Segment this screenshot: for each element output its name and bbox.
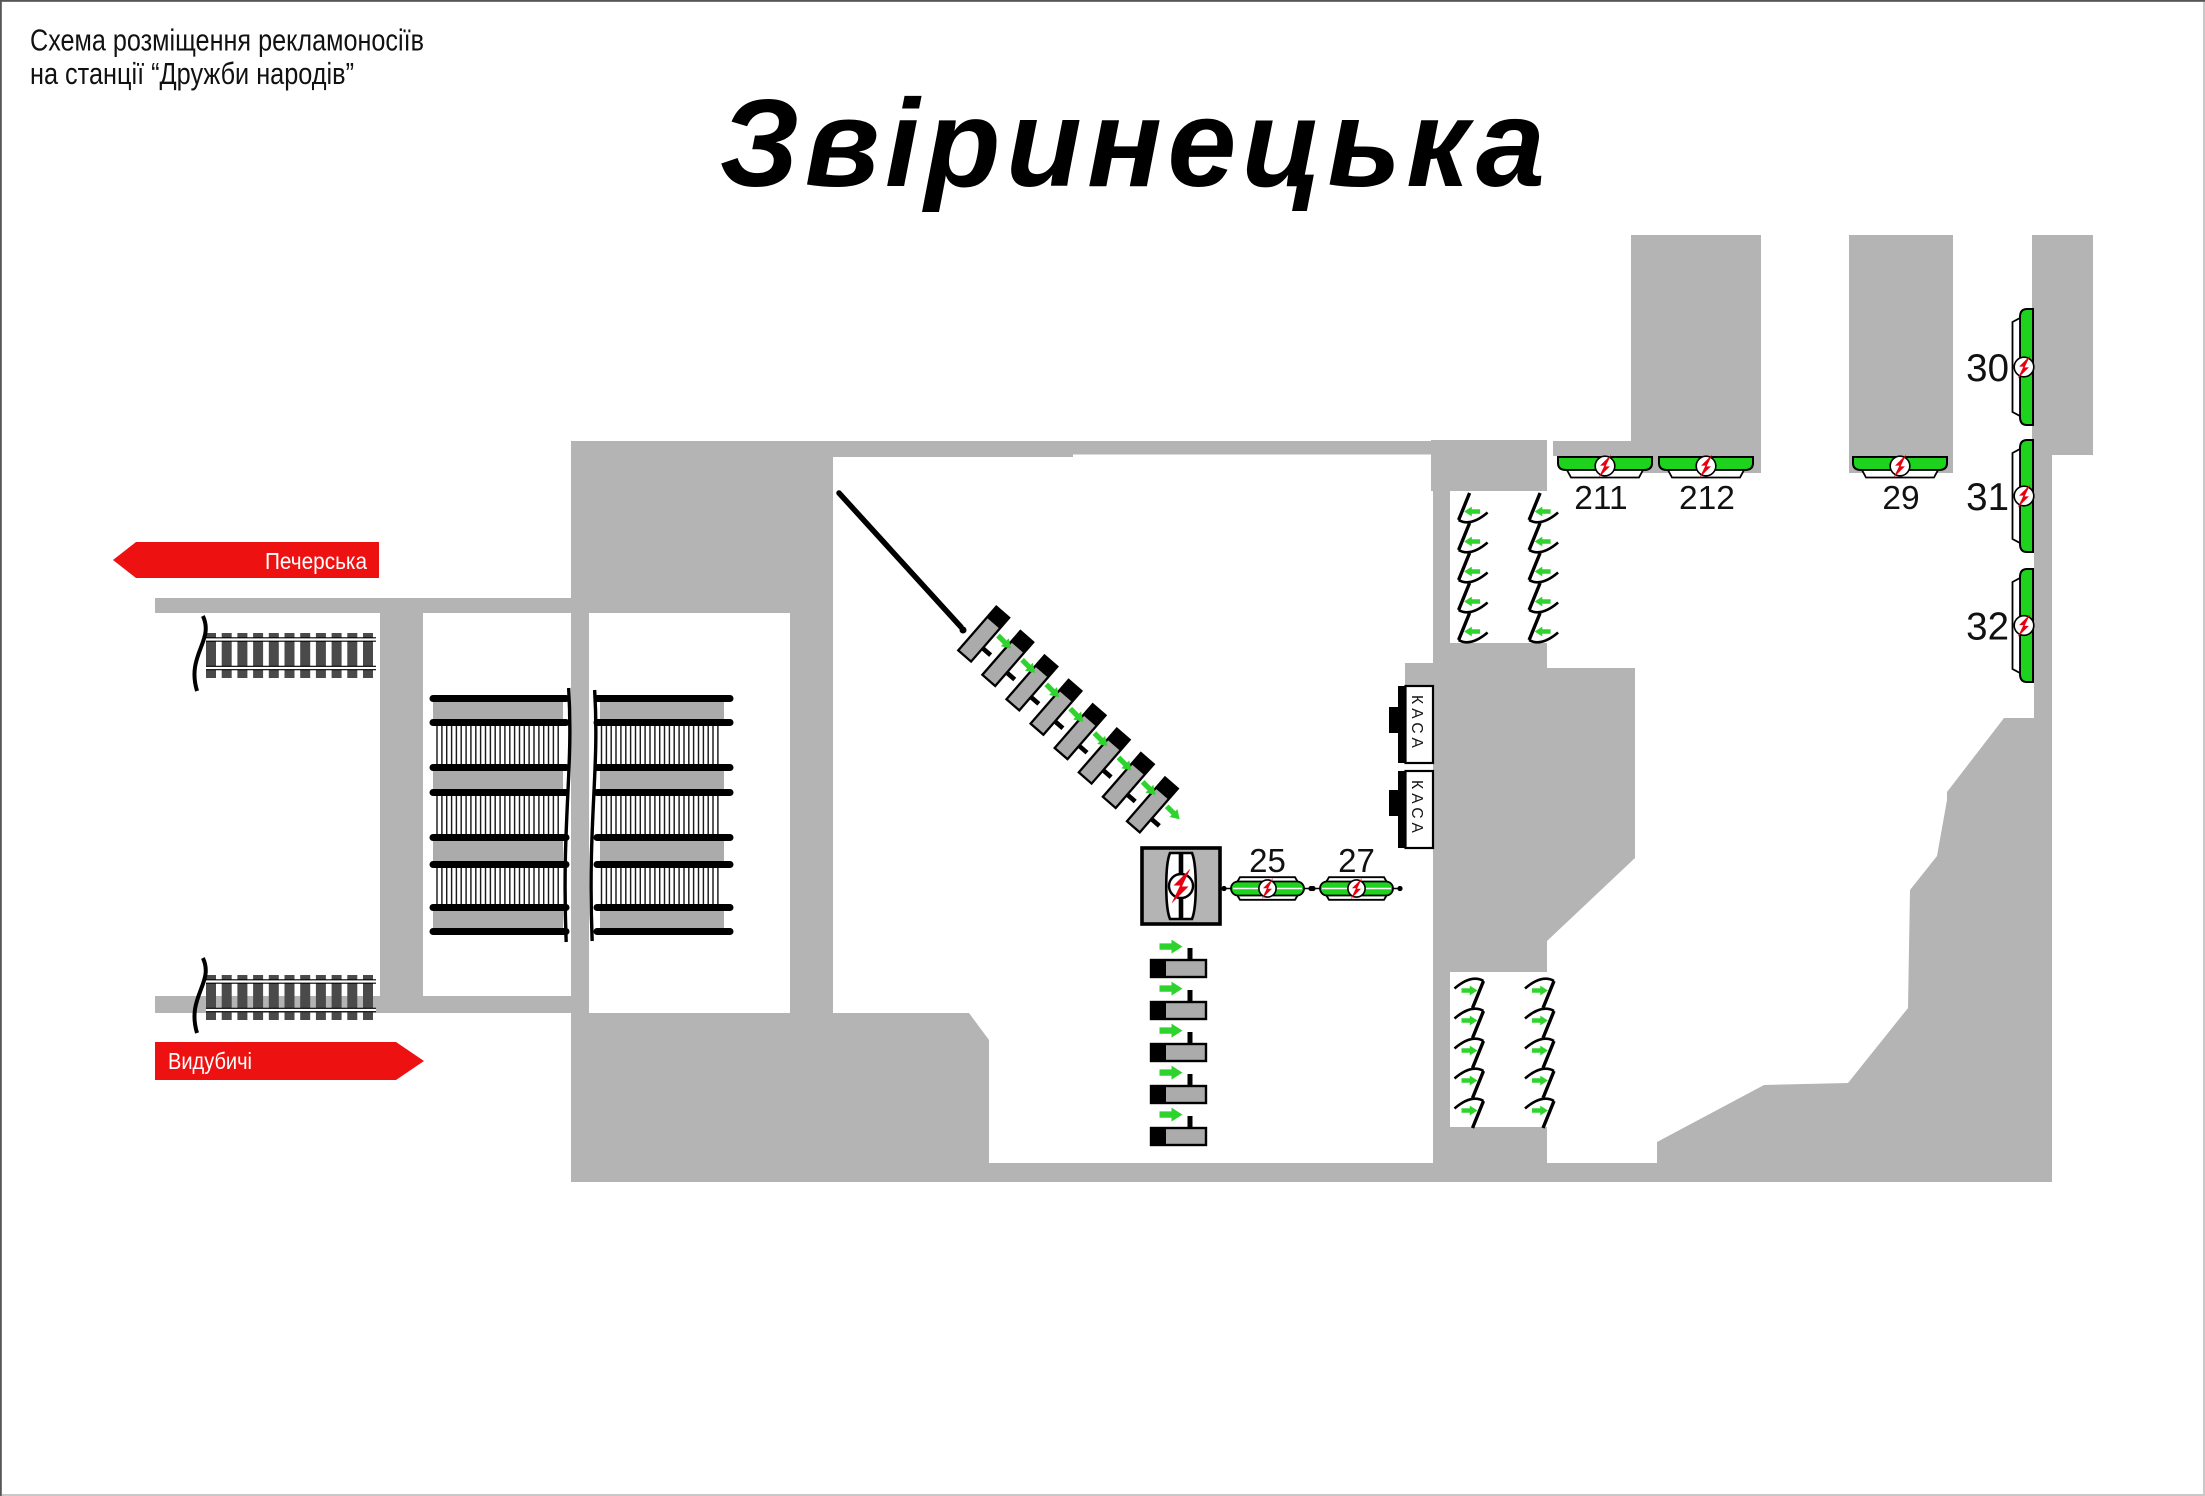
svg-text:32: 32 xyxy=(1966,606,2009,649)
svg-text:25: 25 xyxy=(1249,842,1286,879)
svg-text:на станції “Дружби народів”: на станції “Дружби народів” xyxy=(30,56,354,91)
svg-text:Схема розміщення рекламоносіїв: Схема розміщення рекламоносіїв xyxy=(30,23,424,58)
svg-text:211: 211 xyxy=(1574,480,1627,517)
svg-text:212: 212 xyxy=(1679,480,1735,517)
svg-text:27: 27 xyxy=(1338,842,1375,879)
svg-text:30: 30 xyxy=(1966,347,2009,390)
svg-text:Видубичі: Видубичі xyxy=(168,1048,252,1074)
svg-text:Печерська: Печерська xyxy=(265,548,368,574)
svg-text:Звіринецька: Звіринецька xyxy=(720,75,1551,213)
svg-text:29: 29 xyxy=(1882,480,1919,517)
svg-text:КАСА: КАСА xyxy=(1408,695,1425,752)
svg-text:КАСА: КАСА xyxy=(1408,780,1425,837)
svg-text:31: 31 xyxy=(1966,476,2009,519)
